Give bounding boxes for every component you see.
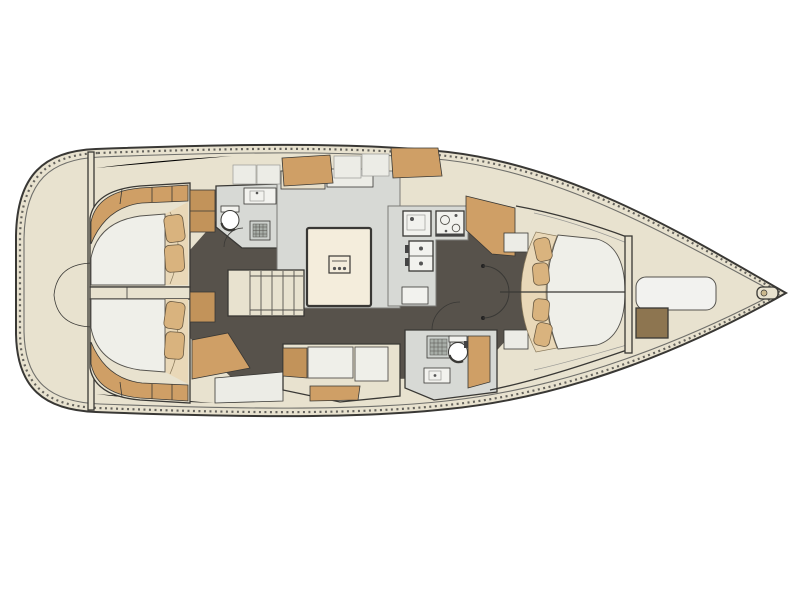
deck-locker: [391, 148, 442, 178]
berth-pillow: [163, 214, 186, 243]
threshold-panel: [504, 330, 528, 349]
counter-end-panel: [402, 287, 428, 304]
burner-dot: [445, 230, 448, 233]
faucet-icon: [434, 374, 437, 377]
berth-pillow: [532, 298, 550, 321]
berth-pillow: [163, 301, 186, 330]
berth-pillow: [532, 262, 550, 285]
boat-plan-svg: Top-down interior deck plan of a sailing…: [0, 0, 800, 600]
companionway-stairs: [228, 270, 304, 316]
washbasin: [424, 368, 450, 383]
settee: [283, 344, 400, 402]
knob-dot: [419, 262, 423, 266]
wardrobe: [190, 292, 215, 322]
bow-locker: [636, 277, 716, 310]
bow-roller-wheel: [761, 290, 767, 296]
bow-roller: [757, 287, 778, 299]
berth-pillow: [164, 331, 185, 359]
berth-pillow: [164, 244, 185, 272]
knob-dot: [419, 247, 423, 251]
settee-cushion: [308, 347, 353, 378]
centerpiece-dot: [333, 267, 336, 270]
faucet-icon: [256, 192, 259, 195]
deck-panel: [362, 154, 389, 176]
yacht-floor-plan: Top-down interior deck plan of a sailing…: [0, 0, 800, 600]
deck-panel: [233, 165, 256, 184]
settee-cushion: [355, 347, 388, 381]
deck-locker: [282, 155, 333, 186]
stove-handle: [436, 234, 464, 237]
centerpiece-dot: [338, 267, 341, 270]
deck-panel: [257, 165, 280, 184]
stove: [436, 211, 464, 236]
aft-cabin-divider: [90, 287, 190, 299]
washbasin: [244, 188, 276, 204]
deck-panel: [334, 156, 361, 178]
faucet-icon: [410, 217, 414, 221]
aft-cabin-port: [90, 183, 190, 287]
fridge-hinge: [405, 258, 409, 266]
forward-bulkhead: [625, 236, 632, 353]
aft-cabin-starboard: [90, 299, 190, 403]
anchor-windlass: [636, 308, 668, 338]
settee-front-trim: [310, 386, 360, 401]
centerpiece-dot: [343, 267, 346, 270]
fridge-hinge: [405, 245, 409, 253]
settee-side-block: [283, 348, 307, 378]
head-side-locker: [468, 336, 490, 388]
threshold-panel: [504, 233, 528, 252]
stair-base: [228, 270, 304, 316]
burner-dot: [455, 214, 458, 217]
divider-band: [90, 287, 190, 299]
